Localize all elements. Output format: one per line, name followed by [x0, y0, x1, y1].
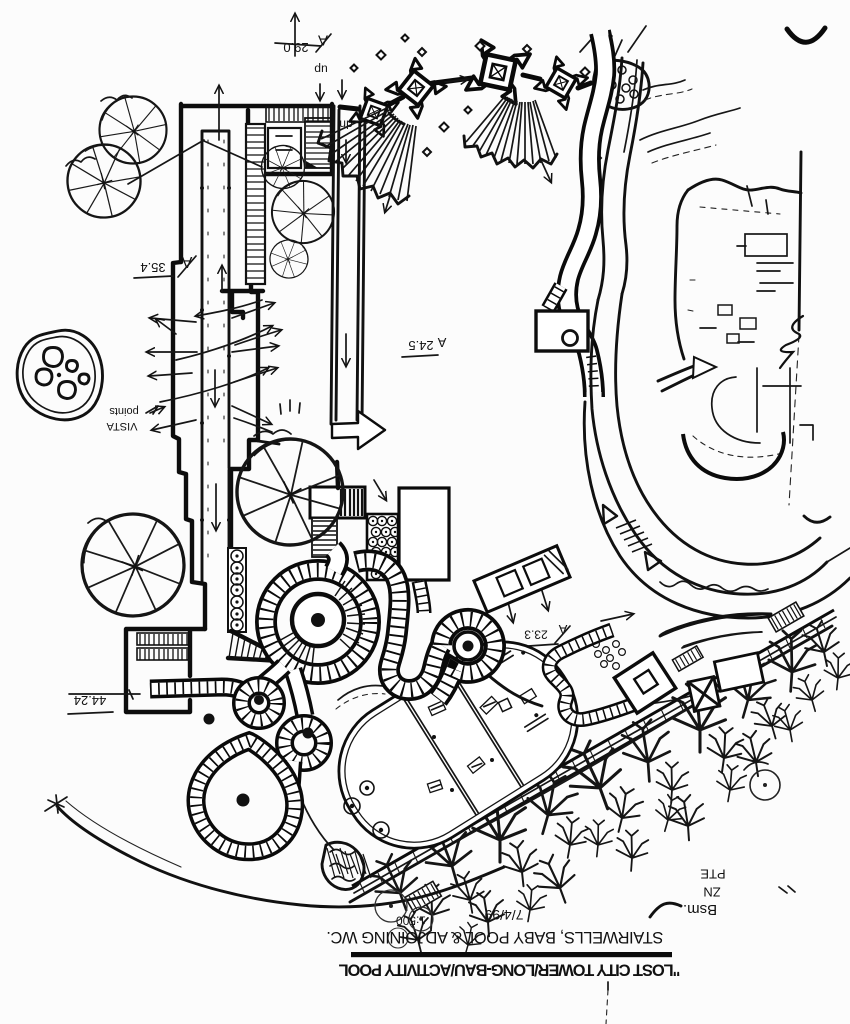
svg-text:1:500: 1:500 [396, 913, 426, 927]
svg-text:VISTA: VISTA [106, 420, 138, 432]
svg-text:up: up [314, 63, 328, 77]
svg-text:PTE: PTE [700, 867, 726, 882]
svg-text:points: points [109, 405, 139, 417]
svg-text:"LOST CITY TOWER/LONG-BAU/ACTI: "LOST CITY TOWER/LONG-BAU/ACTIVITY POOL [339, 960, 681, 978]
svg-text:7/4/99: 7/4/99 [484, 907, 523, 923]
svg-text:44.24: 44.24 [74, 693, 107, 708]
svg-text:29.0: 29.0 [283, 40, 308, 55]
svg-text:Bsm.: Bsm. [683, 901, 717, 918]
svg-text:24.5: 24.5 [408, 338, 433, 353]
svg-text:ZN: ZN [703, 885, 720, 900]
svg-text:STAIRWELLS, BABY POOL & ADJOIN: STAIRWELLS, BABY POOL & ADJOINING WC. [327, 928, 664, 946]
svg-text:35.4: 35.4 [140, 260, 165, 275]
svg-text:23.3: 23.3 [524, 628, 548, 642]
svg-text:A: A [437, 335, 446, 350]
